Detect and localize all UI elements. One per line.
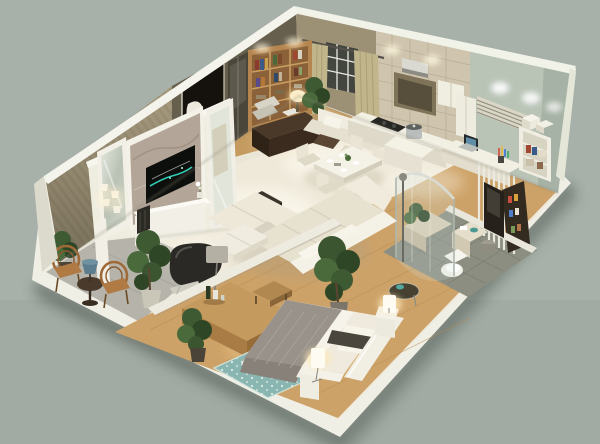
downlight-glow (424, 55, 440, 65)
trunk (149, 268, 150, 290)
shelf-box (539, 150, 546, 157)
shelf-book (537, 162, 543, 169)
wine-bottle (206, 286, 211, 299)
apartment-render (0, 0, 600, 444)
burner (392, 124, 396, 128)
decanter (213, 290, 218, 300)
teal-bowl (470, 228, 478, 233)
downlight-glow (546, 102, 562, 112)
tray (203, 299, 225, 305)
downlight-glow (491, 82, 509, 94)
shelf-glow (286, 38, 302, 46)
downlight-glow (522, 92, 540, 104)
plant-pot (190, 348, 206, 362)
sconce-glow (96, 186, 124, 210)
towel (460, 226, 467, 230)
shelf-book (532, 147, 537, 155)
stool-body (481, 244, 495, 253)
isometric-floorplan-svg (0, 0, 600, 444)
shelf-box (526, 159, 534, 166)
cylinder-lamp (311, 348, 325, 368)
downlight-glow (384, 45, 400, 55)
vase (197, 192, 203, 198)
lamp-shade (206, 246, 228, 263)
pot-knob (413, 125, 416, 128)
shower-head (399, 173, 407, 181)
placemat (334, 163, 341, 166)
shelf-book (526, 145, 531, 153)
teal-bowl (396, 285, 404, 290)
office-shelving (519, 114, 554, 182)
speaker (137, 205, 150, 234)
shower-enclosure (396, 172, 454, 281)
burner (382, 121, 386, 125)
shelf-glow (254, 44, 270, 52)
